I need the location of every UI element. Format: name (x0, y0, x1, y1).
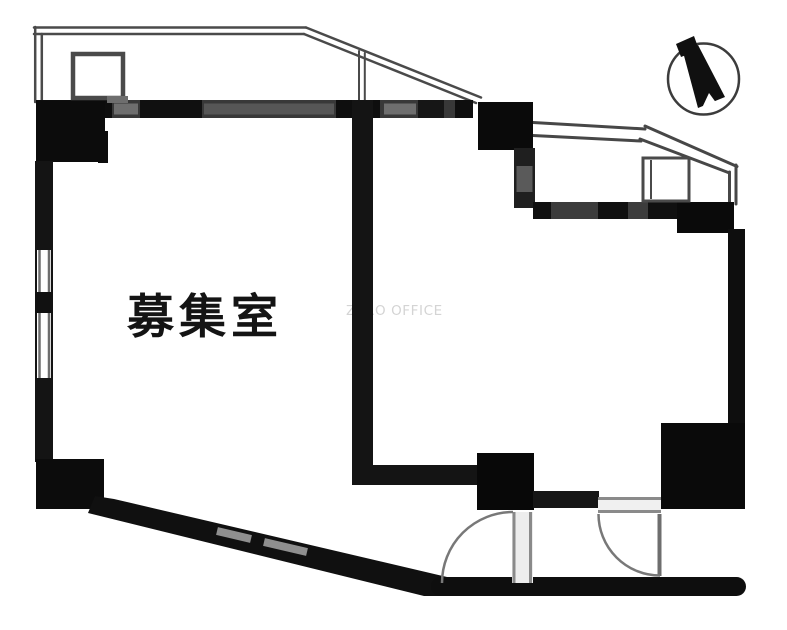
top-diagonal-inner-line (304, 34, 476, 103)
topright-boundary-lines (533, 123, 737, 205)
doors (442, 499, 661, 584)
top-wall-post-b (140, 100, 202, 118)
interior-vertical-wall (352, 100, 373, 485)
left-walls (35, 101, 108, 509)
bottomright-pillar (661, 423, 745, 509)
top-wall-glass-b (204, 104, 334, 115)
right-door-threshold-fill (598, 500, 661, 510)
topleft-window-box (73, 54, 123, 98)
entry-stub-wall (533, 491, 599, 508)
right-wall (728, 229, 745, 431)
bottom-wall (431, 577, 746, 596)
floorplan-canvas: ZERO OFFICE (0, 0, 787, 630)
topright-window-box (643, 158, 689, 201)
interior-walls (352, 100, 599, 510)
left-door-swing-arc (442, 512, 513, 583)
setback-connector-glass (517, 166, 533, 192)
topleft-pillar-step (98, 131, 108, 163)
entry-pillar (477, 453, 534, 510)
room-label: 募集室 (127, 292, 283, 344)
topright-corner-block (677, 202, 734, 233)
top-wall-post-e (455, 100, 473, 118)
upperright-wall-post-a (533, 202, 551, 219)
top-diagonal-outer-line (306, 28, 481, 98)
interior-horizontal-wall (352, 465, 480, 485)
tr-window-line-lower (533, 136, 641, 142)
upperright-wall-post-b (598, 202, 628, 219)
topleft-window-stub (107, 96, 128, 103)
top-wall-glass-c (384, 104, 416, 115)
right-door-swing-arc (599, 514, 661, 576)
compass-icon (668, 36, 739, 115)
compass-needle (683, 45, 725, 108)
topcenter-pillar (478, 102, 533, 150)
upperright-wall-post-c (648, 202, 679, 219)
top-wall-glass-a (114, 104, 138, 115)
floorplan-drawing (0, 0, 787, 630)
tr-window-line-upper (533, 123, 645, 130)
topleft-pillar (36, 101, 105, 162)
top-wall-post-d (418, 100, 444, 118)
left-window-mid-post (35, 292, 53, 313)
